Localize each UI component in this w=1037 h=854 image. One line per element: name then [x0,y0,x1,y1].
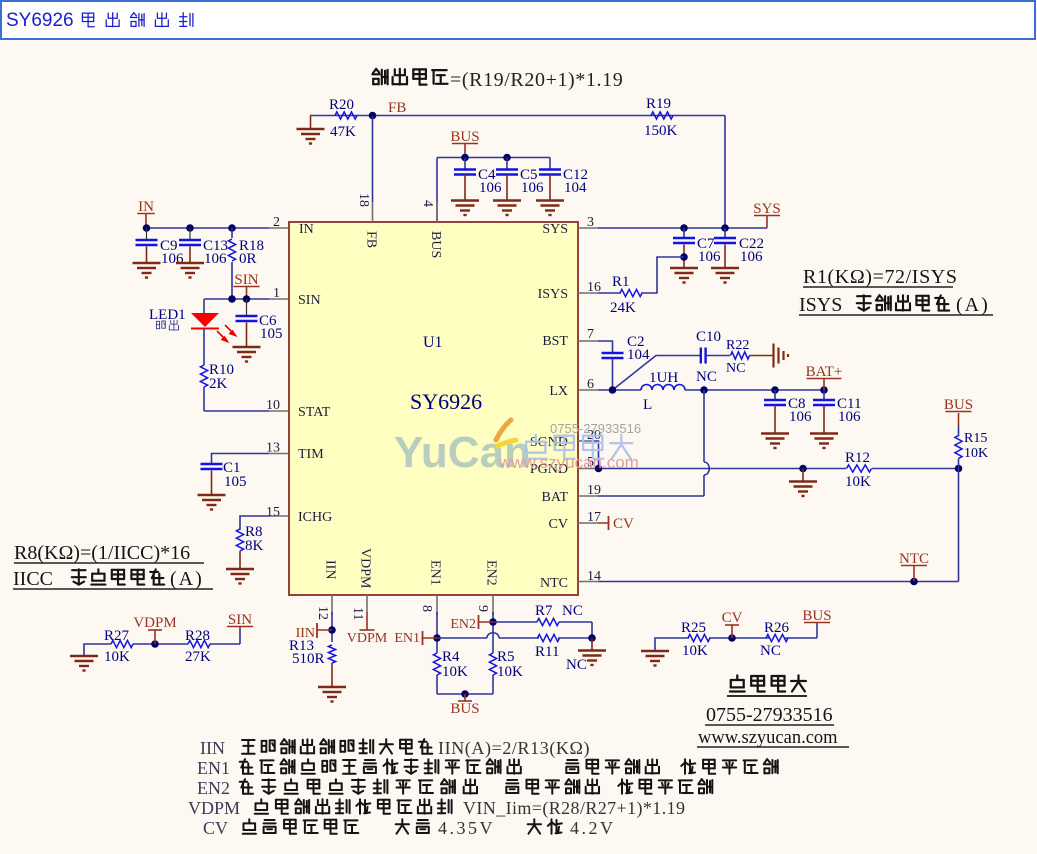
svg-text:8: 8 [419,605,434,612]
svg-text:FB: FB [388,100,406,116]
svg-text:SIN: SIN [228,612,252,628]
svg-text:IN: IN [138,199,154,215]
svg-text:106: 106 [698,249,721,265]
svg-text:CV: CV [613,516,634,532]
svg-text:R28: R28 [185,628,210,644]
svg-text:NC: NC [566,657,587,673]
svg-text:SYS: SYS [753,201,781,217]
svg-text:R25: R25 [681,620,706,636]
svg-text:EN2: EN2 [197,778,230,798]
svg-text:BST: BST [542,334,568,349]
svg-text:10K: 10K [964,446,988,461]
svg-text:15: 15 [266,505,280,520]
svg-text:8K: 8K [245,538,264,554]
svg-text:10K: 10K [442,664,468,680]
svg-text:www.szyucan.com: www.szyucan.com [498,453,639,472]
svg-text:BAT: BAT [542,490,569,505]
svg-text:106: 106 [789,409,812,425]
svg-text:NC: NC [562,603,583,619]
svg-text:IIN: IIN [200,738,225,758]
svg-text:U1: U1 [423,334,443,351]
svg-text:R7: R7 [535,603,553,619]
svg-text:LX: LX [549,384,568,399]
svg-text:VIN_Iim=(R28/R27+1)*1.19: VIN_Iim=(R28/R27+1)*1.19 [463,798,685,819]
svg-text:9: 9 [475,605,490,612]
svg-text:FB: FB [364,231,379,248]
svg-text:106: 106 [161,251,184,267]
svg-text:SIN: SIN [298,293,321,308]
svg-text:IN: IN [299,222,314,237]
svg-text:=(R19/R20+1)*1.19: =(R19/R20+1)*1.19 [450,69,623,91]
svg-text:R1: R1 [612,274,630,290]
svg-text:R4: R4 [442,649,460,665]
svg-text:0R: 0R [239,251,257,267]
svg-text:13: 13 [266,441,280,456]
svg-text:106: 106 [479,180,502,196]
svg-text:R15: R15 [964,431,987,446]
svg-text:0755-27933516: 0755-27933516 [550,421,641,436]
svg-text:104: 104 [564,180,587,196]
svg-text:IIN(A)=2/R13(KΩ): IIN(A)=2/R13(KΩ) [438,738,590,759]
svg-text:EN2: EN2 [450,617,476,632]
svg-text:BUS: BUS [450,701,479,717]
svg-text:7: 7 [587,327,594,342]
svg-text:IIN: IIN [323,560,338,579]
svg-text:10K: 10K [845,474,871,490]
svg-text:2K: 2K [209,376,228,392]
svg-text:VDPM: VDPM [133,615,176,631]
svg-text:TIM: TIM [298,447,324,462]
svg-text:EN1: EN1 [428,560,443,586]
svg-text:(A): (A) [956,294,990,316]
svg-text:27K: 27K [185,649,211,665]
svg-text:EN2: EN2 [484,560,499,586]
svg-text:SY6926: SY6926 [6,10,74,31]
svg-text:EN1: EN1 [197,758,230,778]
svg-text:C10: C10 [696,329,721,345]
svg-text:24K: 24K [610,300,636,316]
svg-text:150K: 150K [644,123,678,139]
svg-text:SYS: SYS [542,222,568,237]
svg-text:R19: R19 [646,96,671,112]
svg-text:R5: R5 [497,649,515,665]
svg-text:4: 4 [420,200,435,207]
svg-text:R11: R11 [535,644,559,660]
svg-text:12: 12 [315,606,330,620]
svg-text:2: 2 [273,215,280,230]
svg-text:EN1: EN1 [394,631,420,646]
svg-text:BAT+: BAT+ [806,364,843,380]
svg-text:47K: 47K [330,124,356,140]
svg-text:BUS: BUS [428,231,443,258]
svg-text:R20: R20 [329,97,354,113]
svg-text:CV: CV [722,610,743,626]
svg-text:SY6926: SY6926 [410,389,482,414]
svg-text:L: L [643,397,652,413]
svg-text:10K: 10K [682,643,708,659]
svg-text:CV: CV [203,818,228,838]
svg-text:VDPM: VDPM [188,798,240,818]
svg-text:510R: 510R [292,651,325,667]
svg-text:11: 11 [350,607,365,620]
svg-text:www.szyucan.com: www.szyucan.com [698,728,838,748]
svg-text:LED1: LED1 [149,307,186,323]
svg-text:VDPM: VDPM [358,548,373,589]
svg-text:4.2V: 4.2V [570,818,616,838]
svg-text:SIN: SIN [234,272,258,288]
svg-text:NTC: NTC [540,576,568,591]
svg-text:106: 106 [521,180,544,196]
svg-text:IICC: IICC [13,568,53,590]
svg-text:106: 106 [740,249,763,265]
svg-text:NC: NC [726,361,745,376]
svg-text:R22: R22 [726,338,749,353]
svg-text:106: 106 [204,251,227,267]
svg-text:ISYS: ISYS [799,294,842,316]
svg-text:0755-27933516: 0755-27933516 [706,704,833,726]
svg-text:1: 1 [273,286,280,301]
svg-text:10K: 10K [497,664,523,680]
svg-text:STAT: STAT [298,405,331,420]
svg-text:R27: R27 [104,628,130,644]
svg-text:R8(KΩ)=(1/IICC)*16: R8(KΩ)=(1/IICC)*16 [14,542,190,564]
svg-text:106: 106 [838,409,861,425]
svg-text:BUS: BUS [944,397,973,413]
svg-text:ICHG: ICHG [298,510,332,525]
svg-text:CV: CV [549,517,568,532]
svg-text:NTC: NTC [899,551,929,567]
svg-text:BUS: BUS [450,129,479,145]
svg-text:R26: R26 [764,620,790,636]
svg-text:105: 105 [224,474,247,490]
svg-text:4.35V: 4.35V [438,818,495,838]
svg-text:18: 18 [356,193,371,207]
svg-text:VDPM: VDPM [347,631,388,646]
svg-text:(A): (A) [170,568,204,590]
svg-text:10: 10 [266,398,280,413]
svg-text:R1(KΩ)=72/ISYS: R1(KΩ)=72/ISYS [803,266,958,288]
svg-text:1UH: 1UH [649,370,678,386]
svg-text:R12: R12 [845,450,870,466]
svg-text:NC: NC [696,369,717,385]
svg-text:ISYS: ISYS [538,287,568,302]
svg-text:NC: NC [760,643,781,659]
svg-text:BUS: BUS [802,608,831,624]
svg-text:105: 105 [260,326,283,342]
svg-text:10K: 10K [104,649,130,665]
svg-text:104: 104 [627,347,650,363]
